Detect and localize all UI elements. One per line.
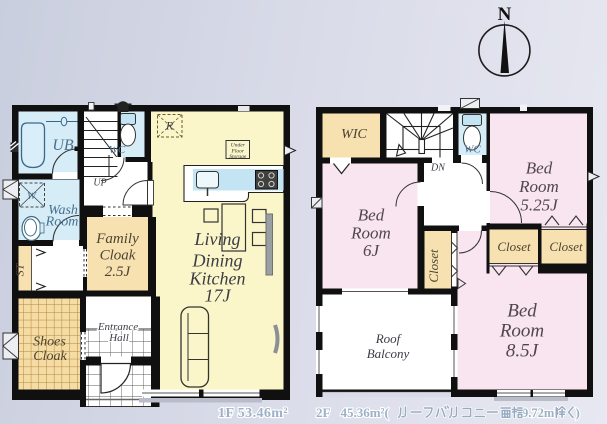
- svg-text:2F: 2F: [316, 405, 331, 420]
- svg-text:Dining: Dining: [191, 251, 242, 271]
- svg-text:UB: UB: [52, 137, 74, 154]
- svg-text:Balcony: Balcony: [367, 346, 410, 361]
- svg-text:N: N: [498, 4, 512, 25]
- svg-text:R: R: [165, 119, 174, 133]
- svg-text:Hall: Hall: [108, 332, 129, 344]
- svg-text:Closet: Closet: [426, 249, 441, 283]
- svg-text:ST: ST: [13, 262, 27, 276]
- svg-text:1F 53.46m²: 1F 53.46m²: [218, 406, 288, 421]
- svg-text:Closet: Closet: [497, 239, 531, 254]
- svg-text:Family: Family: [95, 231, 139, 247]
- svg-text:WIC: WIC: [341, 127, 367, 142]
- svg-text:WC: WC: [109, 144, 126, 156]
- svg-text:Room: Room: [350, 224, 391, 243]
- svg-text:UP: UP: [93, 178, 106, 189]
- svg-text:W: W: [27, 190, 37, 202]
- svg-text:Room: Room: [518, 177, 559, 196]
- svg-text:DN: DN: [430, 163, 446, 174]
- svg-text:Cloak: Cloak: [100, 248, 136, 264]
- svg-text:Room: Room: [499, 321, 544, 342]
- svg-text:9.72m²: 9.72m²: [522, 406, 558, 420]
- svg-text:Bed: Bed: [507, 301, 537, 322]
- svg-text:): ): [576, 405, 580, 420]
- svg-text:Closet: Closet: [549, 239, 583, 254]
- svg-text:Bed: Bed: [358, 206, 385, 225]
- svg-text:8.5J: 8.5J: [506, 341, 540, 362]
- svg-text:Roof: Roof: [375, 331, 403, 346]
- svg-text:Living: Living: [193, 229, 240, 249]
- svg-text:5.25J: 5.25J: [520, 196, 559, 215]
- svg-text:Room: Room: [45, 215, 79, 230]
- svg-text:2.5J: 2.5J: [105, 264, 132, 280]
- svg-text:Bed: Bed: [526, 159, 553, 178]
- svg-text:17J: 17J: [205, 286, 232, 306]
- svg-text:Storage: Storage: [229, 154, 247, 160]
- svg-text:Shoes: Shoes: [33, 335, 66, 350]
- svg-text:Cloak: Cloak: [33, 349, 67, 364]
- svg-text:45.36m²(: 45.36m²(: [341, 405, 389, 420]
- svg-text:WC: WC: [464, 144, 481, 156]
- svg-text:6J: 6J: [363, 241, 381, 260]
